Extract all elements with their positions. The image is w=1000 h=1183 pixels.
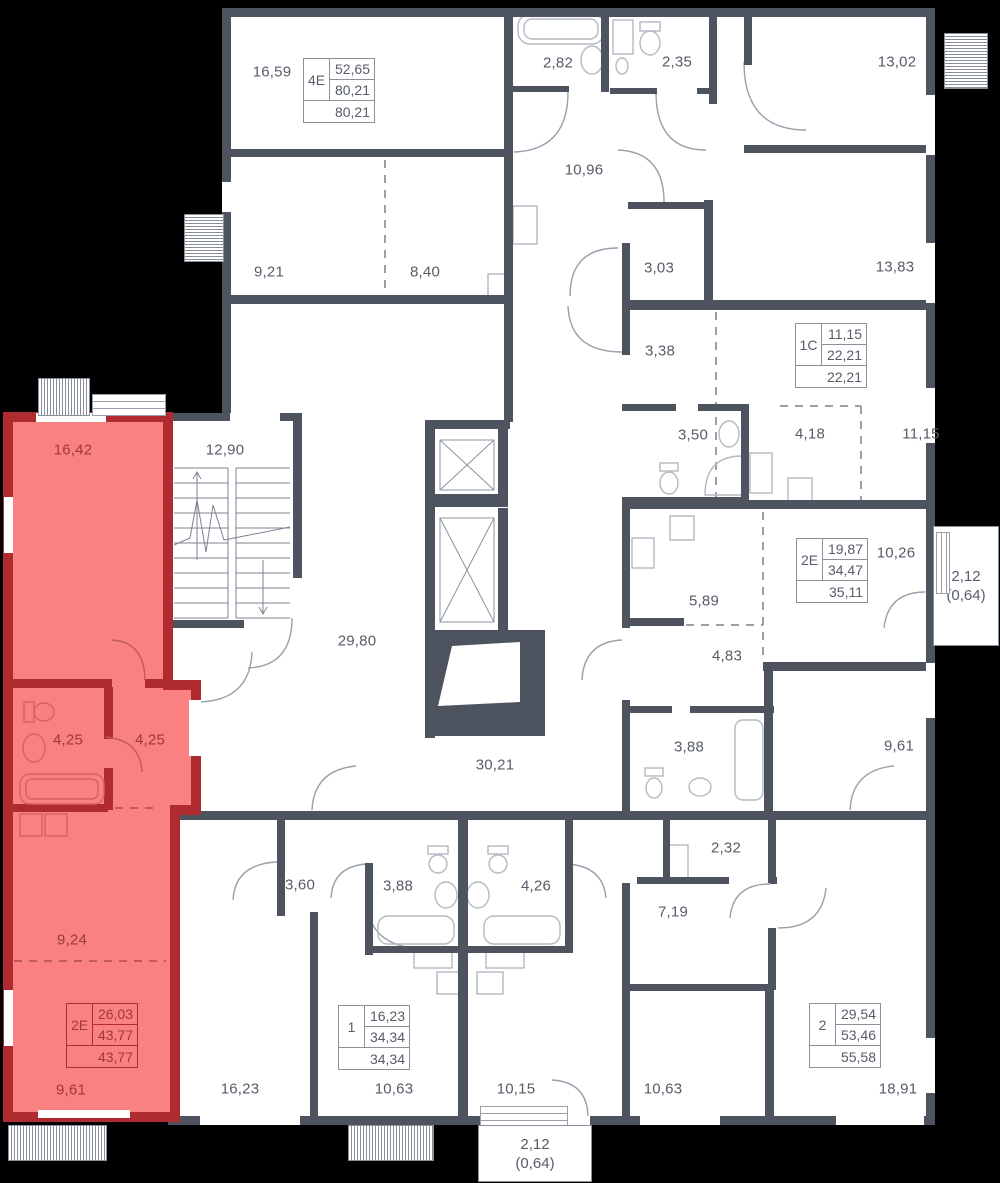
- highlight-room-area-label: 9,24: [57, 932, 87, 949]
- room-area-label: 8,40: [410, 264, 440, 281]
- apartment-type: 1С: [796, 324, 822, 366]
- apartment-area-3: 43,77: [93, 1046, 137, 1067]
- room-area-label: 10,96: [565, 162, 604, 179]
- apartment-area-3: 55,58: [836, 1046, 880, 1067]
- room-area-label: 2,82: [543, 55, 573, 72]
- apartment-area-2: 43,77: [93, 1025, 137, 1046]
- apartment-type-blank: [67, 1046, 93, 1067]
- highlight-room-area-label: 16,42: [54, 442, 93, 459]
- apartment-type: 2Е: [67, 1004, 93, 1046]
- balcony-area: 2,12: [951, 568, 980, 585]
- apartment-type-blank: [810, 1046, 836, 1067]
- room-area-label: 16,59: [253, 64, 292, 81]
- apartment-area-1: 29,54: [836, 1004, 880, 1025]
- apartment-info-2e-highlighted[interactable]: 2Е 26,03 43,77 43,77: [66, 1003, 138, 1068]
- apartment-info-4e[interactable]: 4Е 52,65 80,21 80,21: [303, 58, 375, 123]
- window-box-highlight-top: [38, 378, 90, 416]
- balcony-coefficient: (0,64): [946, 587, 985, 604]
- apartment-type: 2: [810, 1004, 836, 1046]
- room-area-label: 3,03: [644, 260, 674, 277]
- corridor-area-label: 30,21: [476, 757, 515, 774]
- room-area-label: 4,83: [712, 648, 742, 665]
- room-area-label: 13,83: [876, 259, 915, 276]
- room-area-label: 3,88: [674, 739, 704, 756]
- highlight-room-area-label: 9,61: [56, 1082, 86, 1099]
- room-area-label: 7,19: [658, 904, 688, 921]
- balcony-area: 2,12: [520, 1136, 549, 1153]
- room-area-label: 9,21: [254, 264, 284, 281]
- apartment-info-2e-right[interactable]: 2Е 19,87 34,47 35,11: [796, 538, 868, 603]
- window-sill-top: [92, 394, 166, 416]
- room-area-label: 2,35: [662, 54, 692, 71]
- window-box-top-right: [944, 33, 988, 89]
- room-area-label: 10,15: [497, 1081, 536, 1098]
- room-area-label: 2,32: [711, 840, 741, 857]
- apartment-type-blank: [797, 581, 823, 602]
- window-sill-bottom: [480, 1106, 568, 1126]
- apartment-info-1[interactable]: 1 16,23 34,34 34,34: [338, 1005, 410, 1070]
- apartment-area-2: 53,46: [836, 1025, 880, 1046]
- apartment-type-blank: [304, 101, 330, 122]
- apartment-type: 1: [339, 1006, 365, 1048]
- room-area-label: 3,60: [285, 877, 315, 894]
- stairwell-area-label: 12,90: [206, 442, 245, 459]
- apartment-area-2: 22,21: [822, 345, 866, 366]
- room-area-label: 10,63: [644, 1081, 683, 1098]
- apartment-area-3: 34,34: [365, 1048, 409, 1069]
- apartment-area-1: 52,65: [330, 59, 374, 80]
- apartment-area-2: 80,21: [330, 80, 374, 101]
- room-area-label: 11,15: [902, 426, 939, 443]
- room-area-label: 4,26: [521, 878, 551, 895]
- apartment-type: 4Е: [304, 59, 330, 101]
- apartment-area-1: 19,87: [823, 539, 867, 560]
- apartment-area-1: 16,23: [365, 1006, 409, 1027]
- apartment-area-1: 26,03: [93, 1004, 137, 1025]
- apartment-area-3: 35,11: [823, 581, 867, 602]
- window-box-left: [184, 214, 224, 262]
- balcony-right-window: [936, 532, 950, 594]
- room-area-label: 10,26: [877, 545, 916, 562]
- apartment-type: 2Е: [797, 539, 823, 581]
- highlight-room-area-label: 4,25: [135, 732, 165, 749]
- apartment-type-blank: [339, 1048, 365, 1069]
- room-area-label: 4,18: [795, 426, 825, 443]
- room-area-label: 18,91: [879, 1081, 918, 1098]
- room-area-label: 9,61: [884, 738, 914, 755]
- apartment-area-2: 34,34: [365, 1027, 409, 1048]
- room-area-label: 13,02: [878, 54, 917, 71]
- room-area-label: 3,88: [383, 878, 413, 895]
- apartment-type-blank: [796, 366, 822, 387]
- room-area-label: 10,63: [375, 1081, 414, 1098]
- room-area-label: 16,23: [221, 1081, 260, 1098]
- window-box-bottom-middle: [348, 1125, 434, 1161]
- apartment-info-1c[interactable]: 1С 11,15 22,21 22,21: [795, 323, 867, 388]
- highlight-room-area-label: 4,25: [53, 732, 83, 749]
- apartment-area-2: 34,47: [823, 560, 867, 581]
- room-area-label: 3,50: [678, 427, 708, 444]
- room-area-label: 5,89: [689, 593, 719, 610]
- window-box-highlight-bottom: [8, 1125, 107, 1161]
- apartment-info-2[interactable]: 2 29,54 53,46 55,58: [809, 1003, 881, 1068]
- balcony-bottom: 2,12 (0,64): [478, 1125, 592, 1182]
- room-area-label: 3,38: [645, 343, 675, 360]
- apartment-area-3: 22,21: [822, 366, 866, 387]
- corridor-area-label: 29,80: [338, 633, 377, 650]
- floor-plan-stage: 2,12 (0,64) 2,12 (0,64) 16,59 2,82 2,35 …: [0, 0, 1000, 1183]
- apartment-area-3: 80,21: [330, 101, 374, 122]
- balcony-coefficient: (0,64): [515, 1155, 554, 1172]
- apartment-area-1: 11,15: [822, 324, 866, 345]
